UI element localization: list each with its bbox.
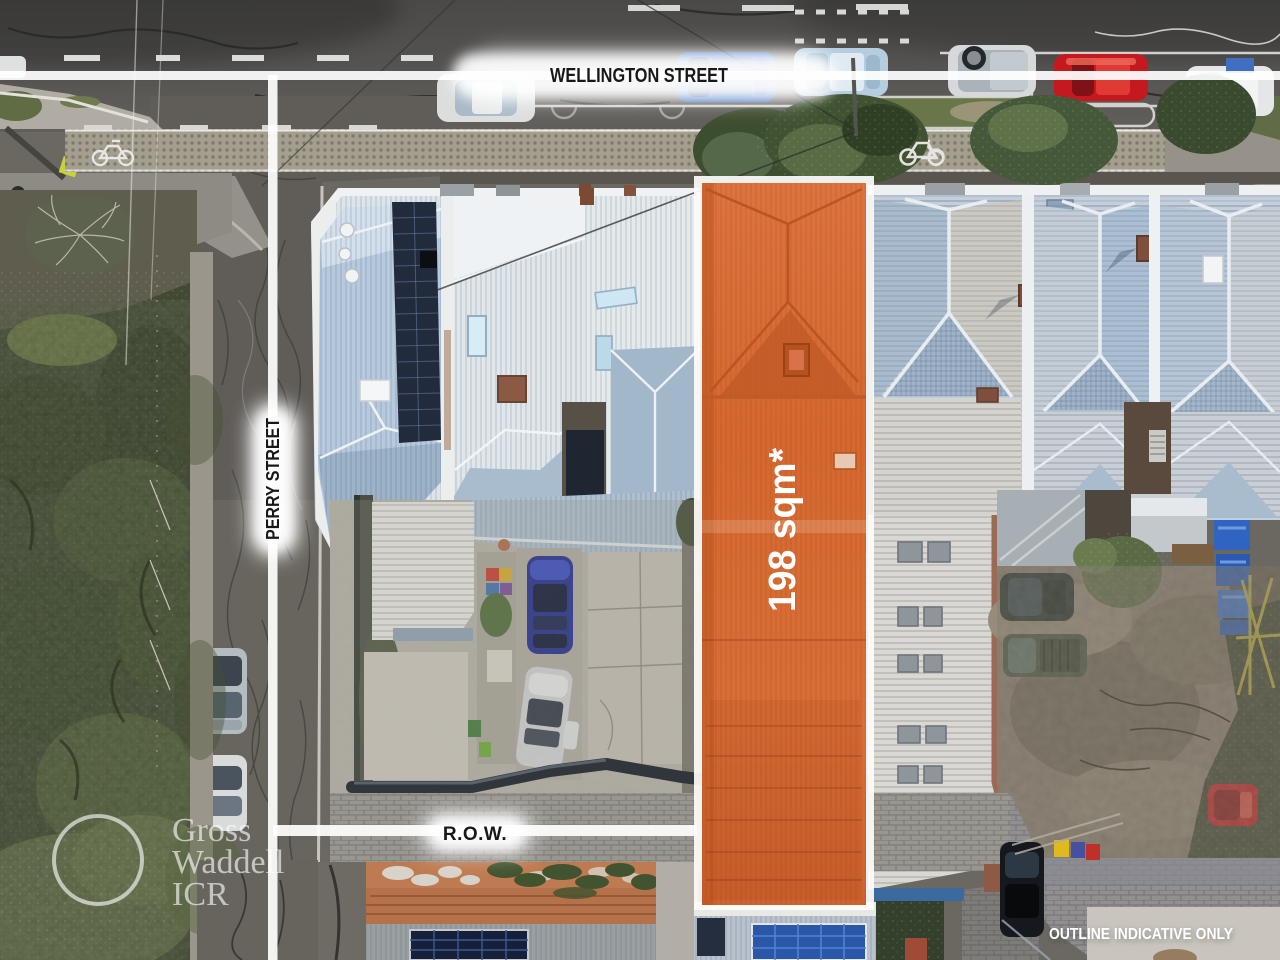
svg-text:ICR: ICR — [172, 876, 229, 913]
svg-text:PERRY STREET: PERRY STREET — [262, 417, 283, 540]
svg-text:WELLINGTON STREET: WELLINGTON STREET — [550, 65, 728, 87]
svg-text:R.O.W.: R.O.W. — [443, 824, 507, 845]
svg-text:198 sqm*: 198 sqm* — [762, 448, 804, 612]
svg-text:OUTLINE INDICATIVE ONLY: OUTLINE INDICATIVE ONLY — [1049, 926, 1234, 943]
